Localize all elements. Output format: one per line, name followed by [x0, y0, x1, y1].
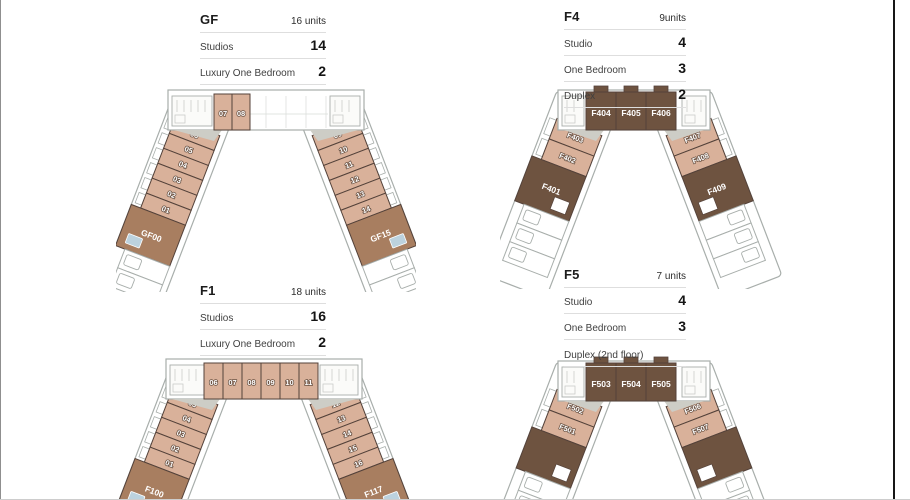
unit-label: 07: [228, 378, 236, 387]
stat-label: Studios: [200, 313, 233, 324]
unit-label: F503: [591, 379, 611, 389]
stat-row: Luxury One Bedroom2: [200, 330, 326, 356]
floorplan-sheet: 060504030201GF00091011121314GF150708F403…: [0, 0, 910, 500]
floor-total-units: 7 units: [657, 271, 686, 282]
unit-label: 07: [219, 109, 227, 118]
stat-value: 16: [310, 308, 326, 324]
unit-label: 10: [285, 378, 293, 387]
stat-row: Luxury One Bedroom2: [200, 59, 326, 85]
stat-label: Luxury One Bedroom: [200, 339, 295, 350]
f1-floorplan: 0504030201F1001213141516F117060708091011: [114, 353, 414, 500]
f4-floorplan: F403F402F401F407F408F409F404F405F406: [500, 84, 782, 289]
floor-total-units: 16 units: [291, 16, 326, 27]
unit-label: 06: [209, 378, 217, 387]
stat-label: Luxury One Bedroom: [200, 68, 295, 79]
stat-row: Studio4: [564, 30, 686, 56]
gf-floorplan: 060504030201GF00091011121314GF150708: [116, 84, 416, 292]
floor-title: F4: [564, 9, 580, 24]
stat-value: 3: [678, 318, 686, 334]
floor-total-units: 9units: [659, 13, 686, 24]
stat-row: Studio4: [564, 288, 686, 314]
stat-label: Duplex: [564, 91, 595, 102]
unit-label: F406: [651, 108, 671, 118]
stat-label: Studios: [200, 42, 233, 53]
floor-title: GF: [200, 12, 218, 27]
stat-row: One Bedroom3: [564, 314, 686, 340]
unit-label: 11: [305, 378, 313, 387]
unit-label: 08: [237, 109, 245, 118]
stat-value: 2: [678, 86, 686, 102]
summary-gf: GF16 unitsStudios14Luxury One Bedroom2: [200, 8, 326, 85]
stat-label: One Bedroom: [564, 323, 626, 334]
summary-f1: F118 unitsStudios16Luxury One Bedroom2: [200, 279, 326, 356]
summary-title-row: F49units: [564, 5, 686, 30]
floor-total-units: 18 units: [291, 287, 326, 298]
stat-label: Duplex (2nd floor): [564, 350, 643, 361]
stat-row: Duplex2: [564, 82, 686, 108]
stat-value: 2: [318, 63, 326, 79]
summary-title-row: GF16 units: [200, 8, 326, 33]
stat-row: Duplex (2nd floor): [564, 340, 686, 367]
window-right-border: [893, 0, 895, 500]
stat-value: 14: [310, 37, 326, 53]
summary-f5: F57 unitsStudio4One Bedroom3Duplex (2nd …: [564, 263, 686, 367]
unit-label: F504: [621, 379, 641, 389]
summary-title-row: F57 units: [564, 263, 686, 288]
summary-title-row: F118 units: [200, 279, 326, 304]
stat-value: 3: [678, 60, 686, 76]
stat-label: One Bedroom: [564, 65, 626, 76]
page-left-border: [0, 0, 1, 500]
unit-label: F404: [591, 108, 611, 118]
floor-title: F5: [564, 267, 580, 282]
stat-label: Studio: [564, 39, 592, 50]
stat-row: Studios16: [200, 304, 326, 330]
stat-label: Studio: [564, 297, 592, 308]
stat-value: 4: [678, 34, 686, 50]
stat-value: 2: [318, 334, 326, 350]
floor-title: F1: [200, 283, 216, 298]
unit-label: 08: [247, 378, 255, 387]
stat-row: Studios14: [200, 33, 326, 59]
summary-f4: F49unitsStudio4One Bedroom3Duplex2: [564, 5, 686, 108]
unit-label: F405: [621, 108, 641, 118]
f5-floorplan: F502F501F506F507F503F504F505: [500, 355, 782, 500]
stat-row: One Bedroom3: [564, 56, 686, 82]
unit-label: F505: [651, 379, 671, 389]
unit-label: 09: [266, 378, 274, 387]
stat-value: 4: [678, 292, 686, 308]
